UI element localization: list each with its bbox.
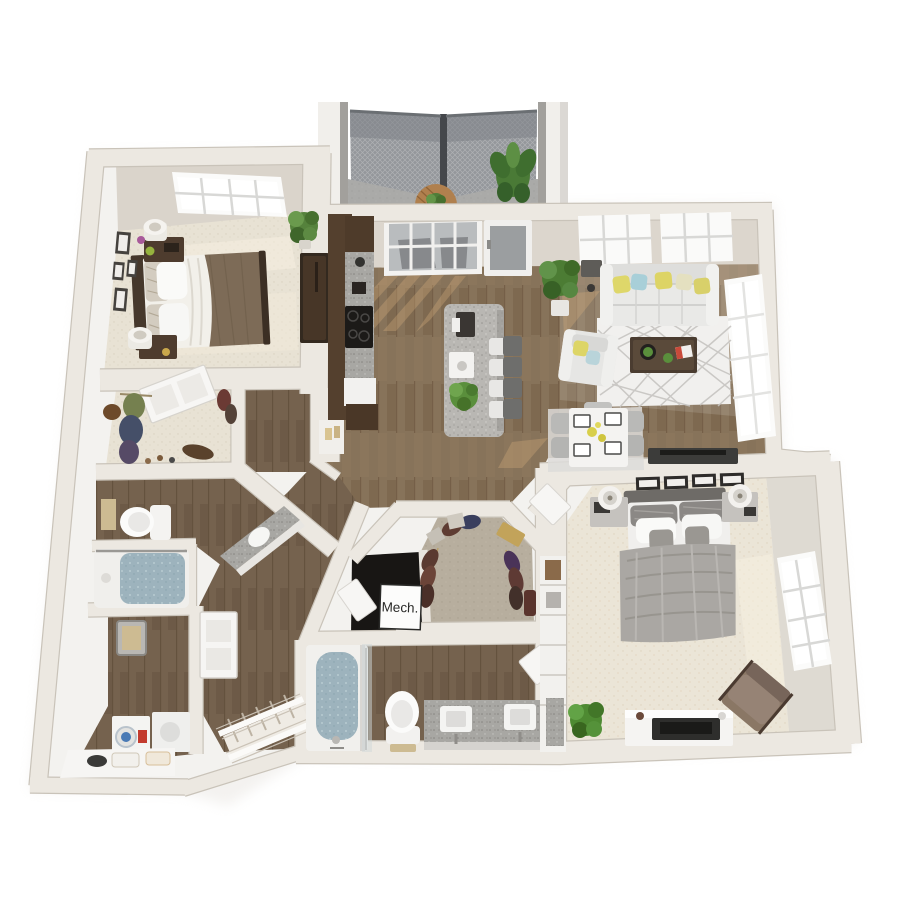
svg-text:Mech.: Mech.	[381, 599, 418, 615]
